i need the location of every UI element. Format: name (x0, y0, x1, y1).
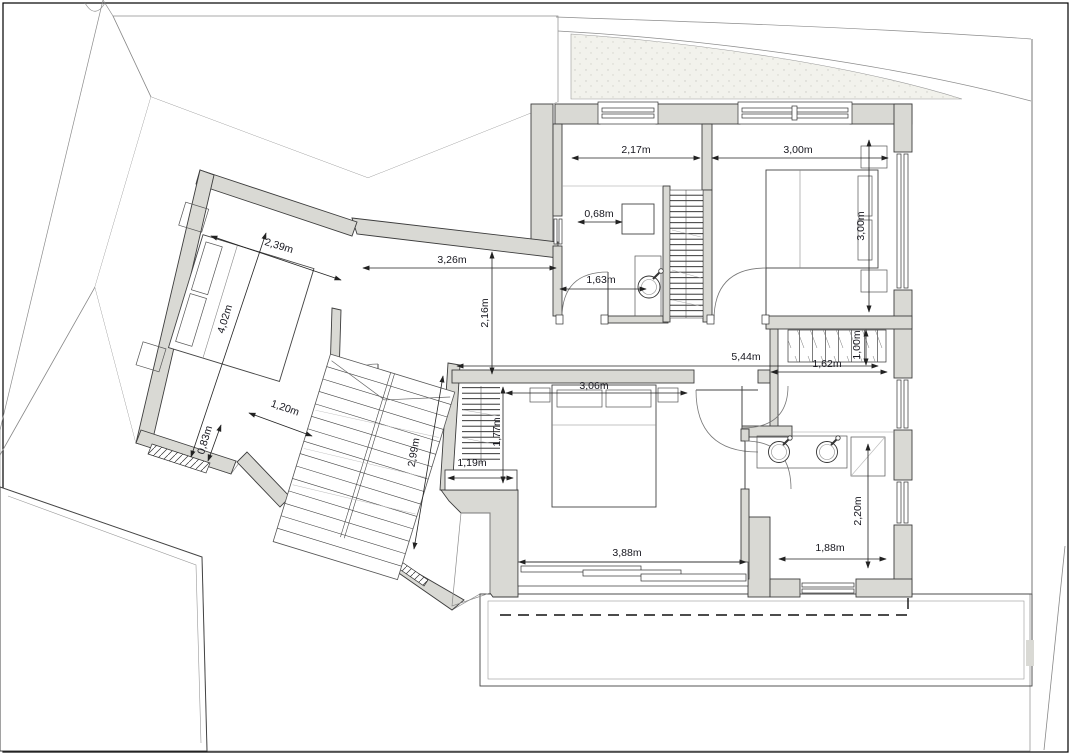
terrace-dashed-line (500, 598, 908, 615)
dimension-label: 1,00m (851, 330, 863, 359)
door-bedroom-right (714, 268, 766, 320)
dimension-label: 1,88m (815, 542, 844, 554)
dimension-label: 0,83m (195, 424, 215, 456)
floor-plan-svg: 2,17m3,00m3,00m0,68m1,63m3,26m2,16m5,44m… (0, 0, 1071, 755)
bed-master (530, 385, 678, 507)
window-top-1 (598, 102, 658, 124)
lower-roof (0, 487, 207, 751)
dimension-label: 2,17m (621, 144, 650, 156)
site-boundary-diagonal (1044, 546, 1065, 750)
nightstand (530, 388, 550, 402)
dimension-label: 1,77m (491, 417, 503, 446)
dimension-label: 1,20m (269, 398, 301, 419)
dimension-label: 3,26m (437, 254, 466, 266)
floor-plan-canvas: 2,17m3,00m3,00m0,68m1,63m3,26m2,16m5,44m… (0, 0, 1071, 755)
dimension-label: 1,62m (812, 358, 841, 370)
window-right-1 (897, 154, 901, 288)
nightstand (861, 146, 887, 168)
dimension-label: 2,20m (852, 496, 864, 525)
cabinet (445, 470, 517, 490)
nightstand (658, 388, 678, 402)
nightstand (861, 270, 887, 292)
window-bath-south (802, 583, 854, 587)
door-closet-hall (742, 386, 788, 428)
dimension-label: 2,39m (263, 236, 295, 256)
dimension-label: 1,19m (457, 457, 486, 469)
dimension-label: 2,16m (479, 298, 491, 327)
desk (622, 204, 654, 234)
dimension-label: 3,06m (579, 380, 608, 392)
dimension-label: 3,00m (783, 144, 812, 156)
window-west (554, 219, 557, 244)
terrain-notch (452, 513, 490, 606)
dimension-label: 3,00m (855, 211, 867, 240)
window-right-2 (897, 380, 901, 428)
dimension-label: 1,63m (586, 274, 615, 286)
dimension-label: 0,68m (584, 208, 613, 220)
terrace (480, 594, 1034, 686)
window-right-3 (897, 482, 901, 523)
dimension-label: 3,88m (612, 547, 641, 559)
dimension-label: 5,44m (731, 351, 760, 363)
door-master-bedroom (696, 390, 758, 452)
site-features (556, 17, 1065, 750)
